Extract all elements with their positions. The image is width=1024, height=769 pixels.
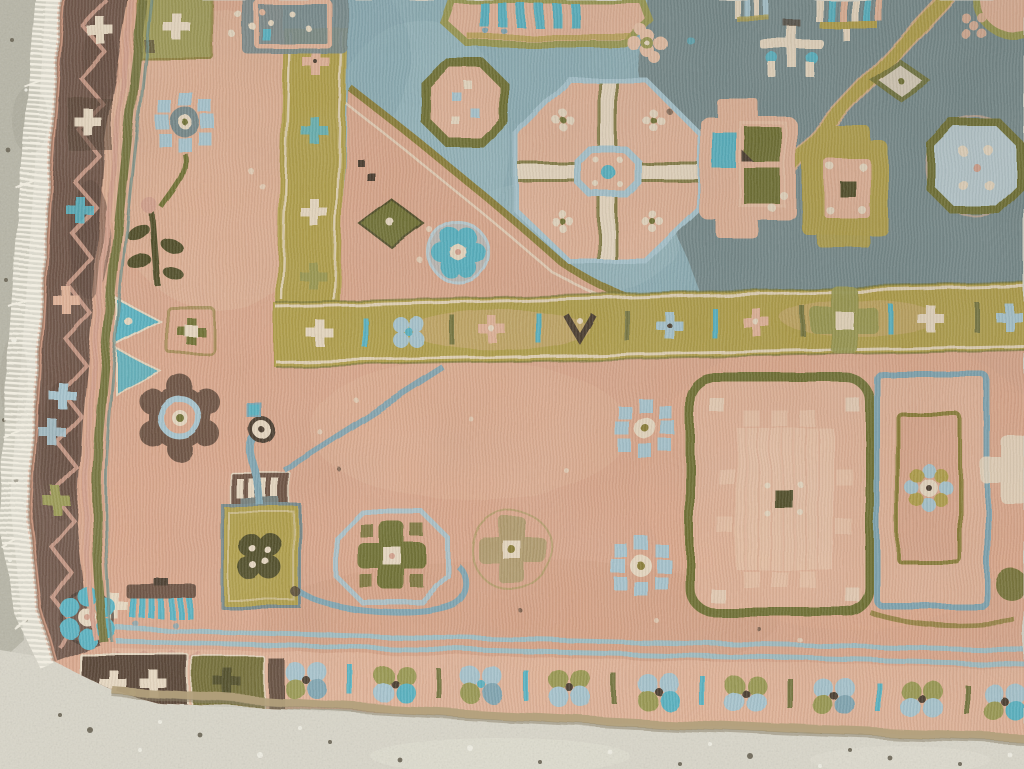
light-shade (0, 0, 1024, 769)
rug-corner-photograph: Top-down photograph of the corner of a v… (0, 0, 1024, 769)
rug (0, 0, 1024, 769)
